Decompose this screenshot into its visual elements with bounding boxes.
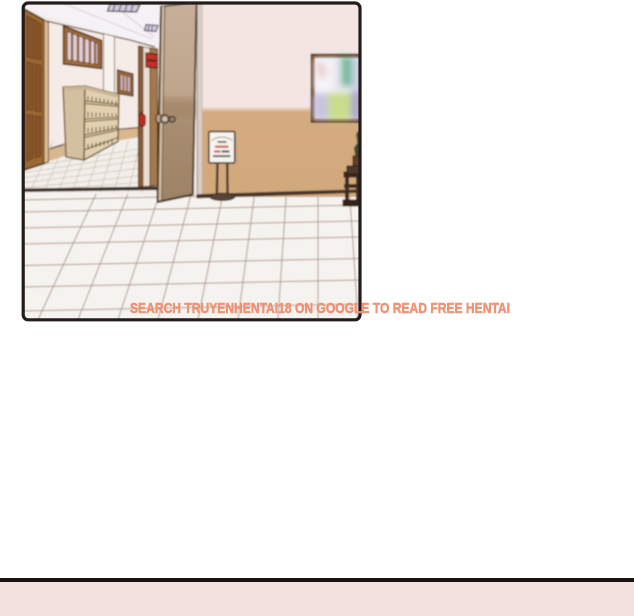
svg-text:SEARCH TRUYENHENTAI18 ON GOOGL: SEARCH TRUYENHENTAI18 ON GOOGLE TO READ …	[130, 300, 510, 317]
